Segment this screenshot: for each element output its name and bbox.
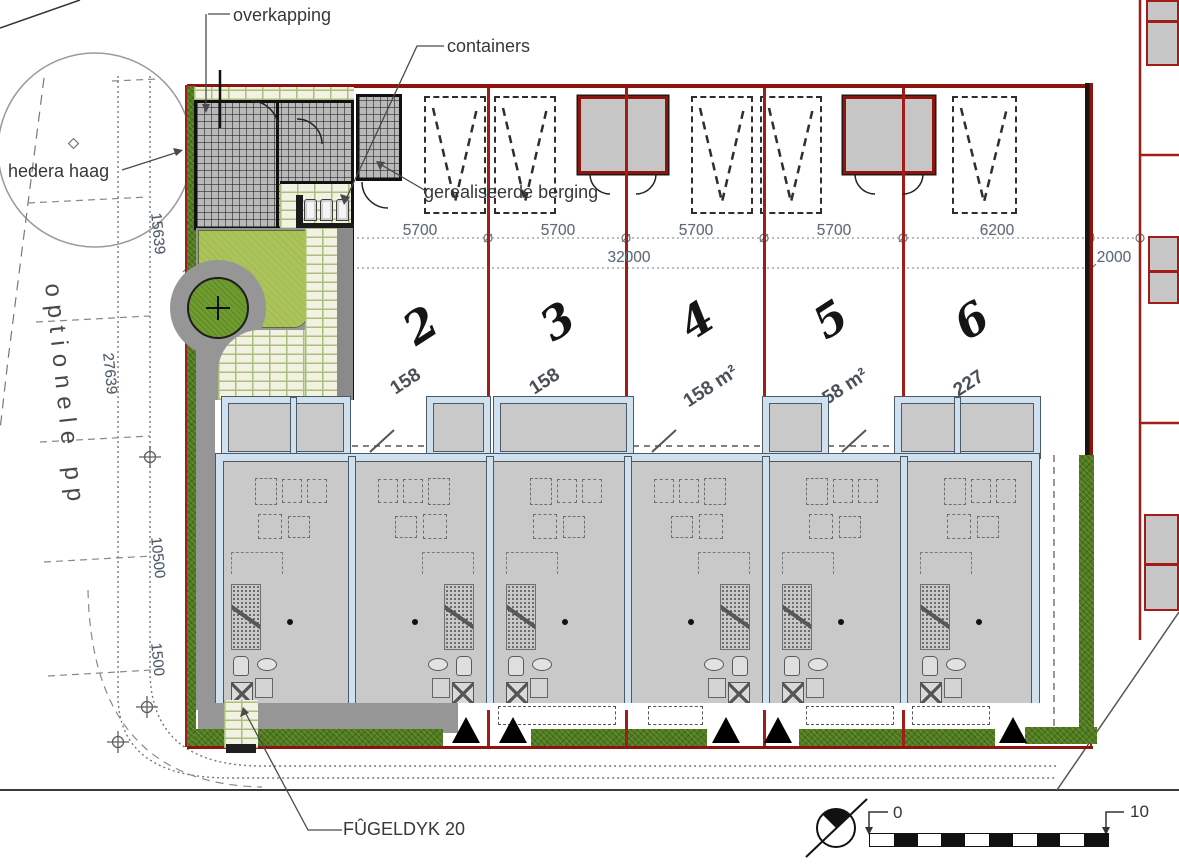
planned-berging-outline [760,96,822,214]
entrance-marker [764,717,792,743]
scale-bar-start: 0 [893,803,902,823]
furniture-mark [563,516,585,538]
furniture-mark [557,479,577,503]
furniture-mark [654,479,674,503]
entrance-brick-path [224,700,258,748]
house-back-extension [494,397,633,458]
furniture-mark [806,478,828,505]
front-divider-5-6 [902,710,905,748]
plot-number-4: 4 [670,291,723,350]
scale-bar-segment [1084,834,1108,846]
front-divider-2-3 [487,710,490,748]
column-dot [688,619,694,625]
scale-bar-segment [918,834,942,846]
column-dot [976,619,982,625]
entrance-marker [999,717,1027,743]
column-dot [412,619,418,625]
furniture-mark [996,479,1016,503]
staircase [231,584,261,650]
staircase [782,584,812,650]
bathroom-fixture [530,678,548,698]
dim-total-width: 32000 [607,249,650,267]
sink-fixture [532,658,552,671]
dim-plot-width-4: 5700 [679,222,713,240]
extension-inner-wall [954,397,961,458]
left-dashed-boundary [0,78,44,430]
bathroom-fixture [944,678,962,698]
staircase [506,584,536,650]
dim-left-15639: 15639 [147,212,168,255]
dim-right-offset: 2000 [1097,249,1131,267]
top-brick-strip [194,87,354,100]
dim-plot-width-3: 5700 [541,222,575,240]
kitchen-counter-mark [506,552,558,574]
furniture-mark [255,478,277,505]
furniture-mark [533,514,557,539]
sink-fixture [257,658,277,671]
toilet-fixture [456,656,472,676]
toilet-fixture [732,656,748,676]
party-wall-5-6 [900,456,908,710]
entrance-step [226,744,256,753]
house-back-extension [222,397,350,458]
sink-fixture [704,658,724,671]
furniture-mark [282,479,302,503]
scale-bar-segment [989,834,1013,846]
column-dot [562,619,568,625]
kitchen-counter-mark [782,552,834,574]
kitchen-counter-mark [698,552,750,574]
site-plan-canvas: 5700 5700 5700 5700 6200 32000 2000 1563… [0,0,1179,864]
party-wall-2-3 [486,456,494,710]
container-bin-3 [336,199,349,221]
furniture-mark [839,516,861,538]
house-back-extension [895,397,1040,458]
overkapping-inner-wall [276,100,279,230]
garden-brick-column [305,228,337,400]
furniture-mark [699,514,723,539]
label-overkapping: overkapping [233,5,331,26]
sink-fixture [946,658,966,671]
extension-inner-wall [290,397,297,458]
party-wall-1-2 [348,456,356,710]
scale-bar-segment [941,834,965,846]
corner-diagonal-line [0,0,80,28]
toilet-fixture [784,656,800,676]
site-boundary-right-thick [1085,83,1093,457]
scale-bar-segment [1060,834,1084,846]
front-hedge [531,729,707,746]
toilet-fixture [922,656,938,676]
dim-left-10500: 10500 [147,536,168,579]
scale-bar-segment [870,834,894,846]
neighbour-shed [1146,0,1179,66]
site-boundary-bottom [187,746,1093,749]
bathroom-fixture [255,678,273,698]
right-hedge-strip [1079,455,1094,729]
dim-plot-width-5: 5700 [817,222,851,240]
north-arrow-icon [806,799,867,857]
dim-left-27639: 27639 [99,352,120,395]
house-back-extension [763,397,828,458]
bathroom-fixture [708,678,726,698]
party-wall-4-5 [762,456,770,710]
furniture-mark [944,478,966,505]
furniture-mark [288,516,310,538]
container-bin-1 [304,199,317,221]
furniture-mark [977,516,999,538]
furniture-mark [423,514,447,539]
entrance-marker [712,717,740,743]
front-hedge [799,729,995,746]
toilet-fixture [508,656,524,676]
kitchen-counter-mark [231,552,283,574]
front-divider-3-4 [625,710,628,748]
label-containers: containers [447,36,530,57]
plot-number-6: 6 [945,291,998,350]
garden-tree [187,277,249,339]
label-gerealiseerde-berging: gerealiseerde berging [424,182,598,203]
front-garden-outline [648,706,703,725]
house-back-extension [427,397,490,458]
plot-number-2: 2 [394,296,447,355]
scale-bar-end: 10 [1130,802,1149,822]
tree-center-marker [69,139,79,149]
furniture-mark [530,478,552,505]
entrance-marker [452,717,480,743]
front-hedge [1025,727,1097,744]
scale-bar-segment [1013,834,1037,846]
left-side-pavement [196,398,215,710]
neighbour-shed-divider [1144,563,1179,566]
furniture-mark [809,514,833,539]
label-optionele-pp: optionele pp [38,282,90,510]
furniture-mark [428,478,450,505]
front-garden-outline [912,706,990,725]
neighbour-shed-divider [1148,270,1179,273]
kitchen-counter-mark [920,552,972,574]
planned-berging-outline [691,96,753,214]
label-hedera-haag: hedera haag [8,161,109,182]
plot-area-2: 158 [387,364,426,400]
staircase [444,584,474,650]
furniture-mark [671,516,693,538]
toilet-fixture [233,656,249,676]
bathroom-fixture [432,678,450,698]
scale-bar [869,833,1109,847]
furniture-mark [582,479,602,503]
column-dot [838,619,844,625]
furniture-mark [258,514,282,539]
kitchen-counter-mark [422,552,474,574]
container-bin-2 [320,199,333,221]
furniture-mark [403,479,423,503]
bathroom-fixture [806,678,824,698]
gerealiseerde-berging-shed [356,94,402,181]
column-dot [287,619,293,625]
dim-left-1500: 1500 [147,642,167,677]
neighbour-shed-divider [1146,20,1179,23]
garden-dark-strip [337,228,353,400]
plot-number-5: 5 [804,290,857,349]
realised-berging [843,96,935,174]
furniture-mark [947,514,971,539]
survey-markers [107,446,161,753]
furniture-mark [858,479,878,503]
plot-area-4: 158 m² [680,361,742,412]
furniture-mark [307,479,327,503]
realised-berging [578,96,668,174]
dim-plot-width-2: 5700 [403,222,437,240]
scale-bar-segment [894,834,918,846]
scale-bar-segment [1037,834,1061,846]
furniture-mark [833,479,853,503]
front-garden-outline [806,706,894,725]
label-street: FÛGELDYK 20 [343,819,465,840]
staircase [720,584,750,650]
scalebar-ticks [869,812,1124,829]
sink-fixture [428,658,448,671]
staircase [920,584,950,650]
scale-bar-segment [965,834,989,846]
plot-number-3: 3 [531,292,584,351]
planned-berging-outline [952,96,1017,214]
dim-plot-width-6: 6200 [980,222,1014,240]
furniture-mark [395,516,417,538]
right-kerb-diagonal [1057,612,1179,790]
furniture-mark [378,479,398,503]
sink-fixture [808,658,828,671]
furniture-mark [971,479,991,503]
entrance-marker [499,717,527,743]
plot-area-3: 158 [526,364,565,400]
party-wall-3-4 [624,456,632,710]
furniture-mark [679,479,699,503]
furniture-mark [704,478,726,505]
